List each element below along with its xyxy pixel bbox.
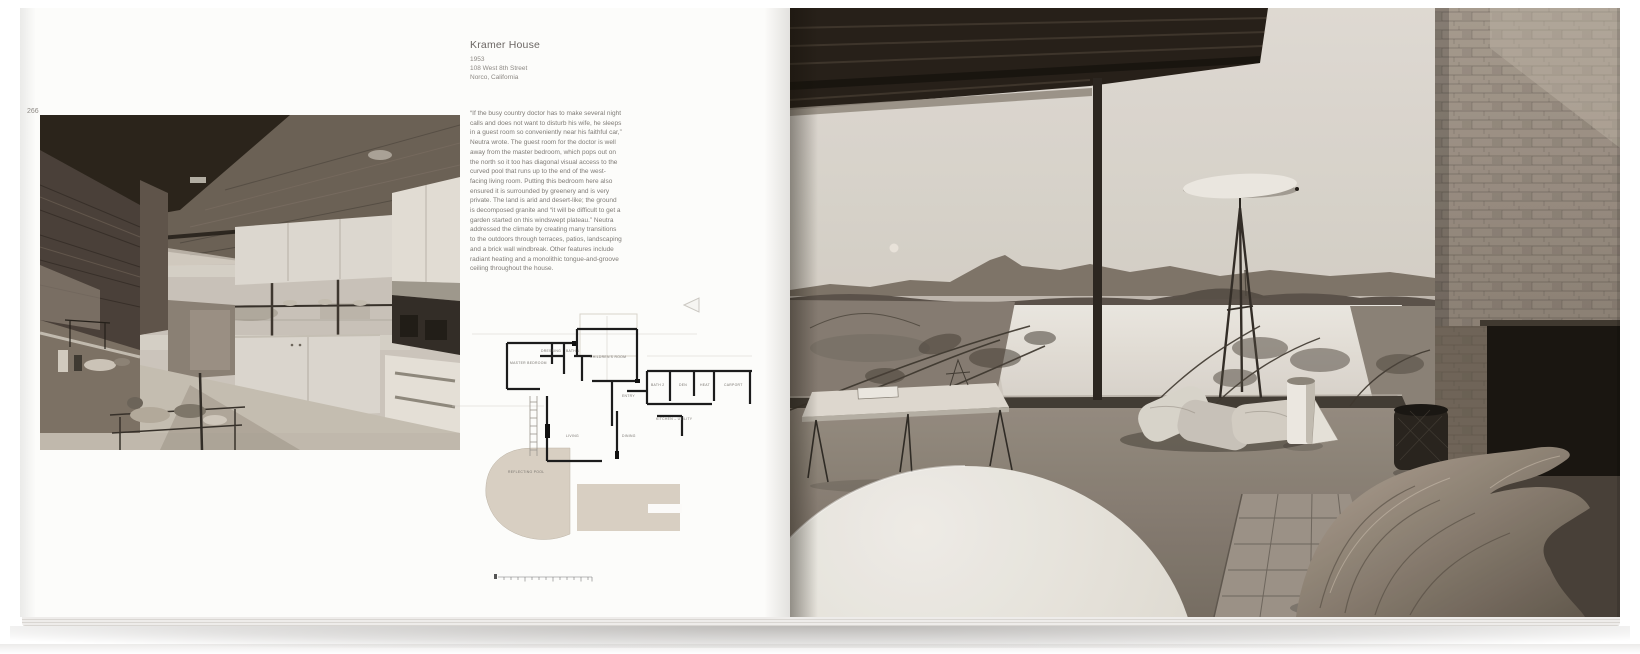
plan-label-bath1: BATH 1 [566,349,579,353]
house-address: 108 West 8th Street [470,64,670,73]
page-number: 266 [27,108,39,115]
kitchen-photo [40,115,460,450]
title-block: Kramer House 1953 108 West 8th Street No… [470,39,670,82]
house-year: 1953 [470,55,670,64]
plan-label-living: LIVING [566,434,579,438]
floor-plan: MASTER BEDROOM DRESSING BATH 1 CHILDREN'… [452,296,752,566]
plan-label-heat: HEAT [700,383,710,387]
plan-label-dressing: DRESSING [541,349,561,353]
left-page: 266 [20,8,790,617]
body-text: “If the busy country doctor has to make … [470,109,623,274]
plan-label-reflecting-pool: REFLECTING POOL [508,470,544,474]
plan-label-dining: DINING [622,434,636,438]
house-title: Kramer House [470,39,670,51]
plan-label-master-bedroom: MASTER BEDROOM [510,361,547,365]
book-spread: 266 [0,0,1640,654]
plan-label-kitchen-utility: KITCHEN – UTILITY [656,417,693,421]
plan-label-childrens-room: CHILDREN'S ROOM [590,355,626,359]
scale-bar [494,572,594,584]
book-page-edges [22,617,1620,626]
plan-label-bath2: BATH 2 [651,383,664,387]
house-city: Norco, California [470,73,670,82]
plan-label-den: DEN [679,383,687,387]
gutter-shadow [790,8,818,617]
plan-label-entry: ENTRY [622,394,635,398]
patio-photo [790,8,1620,617]
plan-label-carport: CARPORT [724,383,743,387]
right-page [790,8,1620,617]
surface-shadow [0,644,1640,654]
